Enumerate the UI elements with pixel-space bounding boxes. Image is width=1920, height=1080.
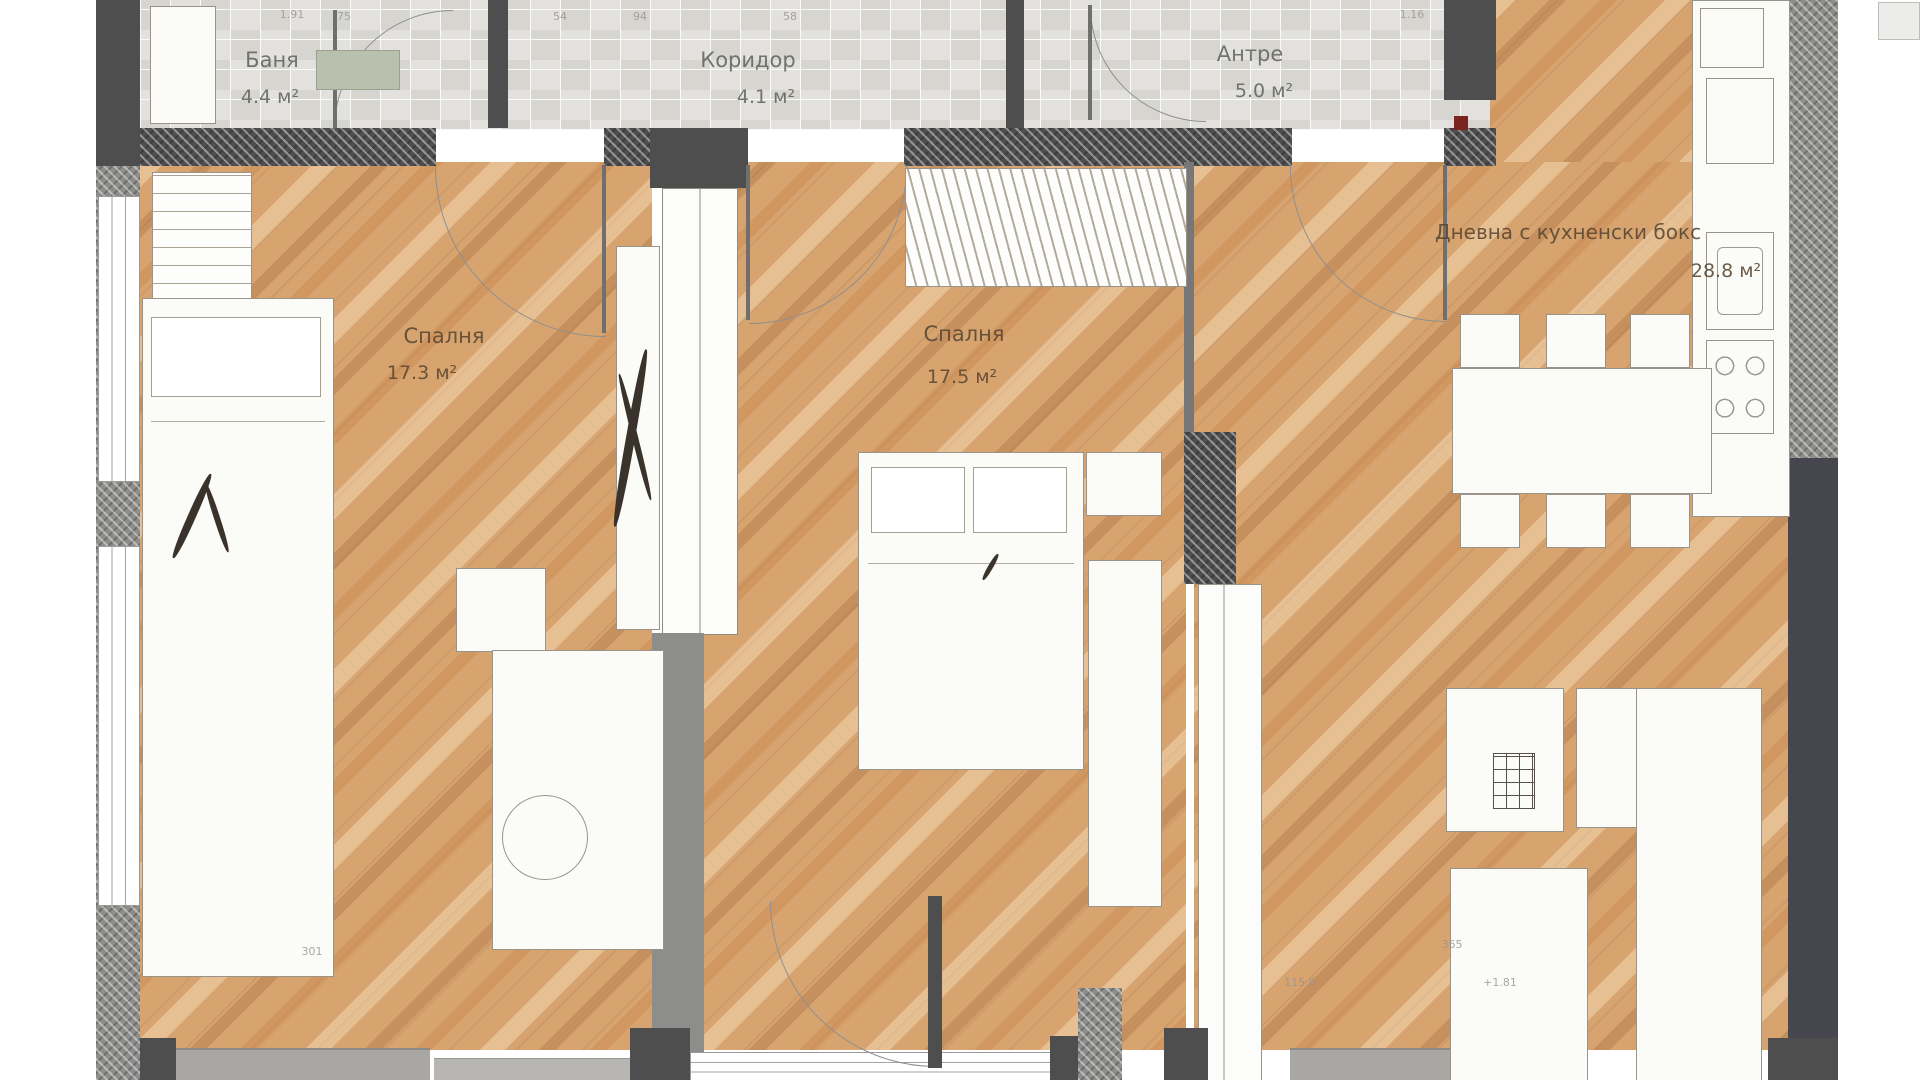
washing-machine [150,6,216,124]
bottom-block-2 [1050,1036,1078,1080]
bottom-right-corner [1768,1038,1838,1080]
entry-label: Антре [1217,44,1284,65]
dim-1: 75 [337,10,351,23]
entry-partition-wall [1006,0,1024,128]
bathroom-partition-wall [488,0,508,128]
dining-table [1452,368,1712,494]
dim-8: +1.81 [1483,976,1517,989]
tv-set [1493,753,1535,809]
bathroom-area: 4.4 м² [241,88,299,107]
bedroom1-door-leaf [602,165,606,333]
dining-chair-6 [1630,494,1690,548]
dim-5: 1.16 [1400,8,1425,21]
entry-area: 5.0 м² [1235,82,1293,101]
kitchen-appliance-2 [1706,78,1774,164]
side-table [1450,868,1588,1080]
bedroom1-nightstand [456,568,546,652]
bedroom2-nightstand [1086,452,1162,516]
dim-3: 94 [633,10,647,23]
entry-wall-stub [1444,0,1496,100]
right-outer-wall-top [1788,0,1838,458]
dining-chair-4 [1460,494,1520,548]
corridor-label: Коридор [700,50,795,71]
dim-7: 365 [1442,938,1463,951]
bedroom2-bottom-door-leaf [928,896,942,1068]
right-outer-wall-bottom [1788,458,1838,1080]
bedroom1-window-sill-1 [176,1048,430,1080]
corridor-wall-seg4 [1444,128,1496,166]
dim-2: 54 [553,10,567,23]
bedroom1-bed [142,298,334,977]
corridor-wall-seg3 [904,128,1292,166]
sofa-vertical [1636,688,1762,1080]
dim-6: 301 [302,945,323,958]
bedroom1-label: Спалня [403,326,484,347]
bedroom1-area: 17.3 м² [387,364,457,383]
bedroom2-living-wall-block [1184,432,1236,584]
bedroom2-door-leaf [746,165,750,320]
living-label: Дневна с кухненски бокс [1435,222,1701,242]
corridor-area: 4.1 м² [737,88,795,107]
bedroom2-blanket-line [868,563,1074,564]
bathroom-label: Баня [245,50,299,71]
bedroom2-bed [858,452,1084,770]
bathroom-counter [316,50,400,90]
bedroom2-label: Спалня [923,324,1004,345]
bedroom1-window-sill-2 [434,1058,632,1080]
column-marker-red [1454,116,1468,130]
kitchen-appliance-1 [1700,8,1764,68]
tv-cabinet [1446,688,1564,832]
corridor-wall-seg1 [140,128,436,166]
bedroom2-area: 17.5 м² [927,368,997,387]
dim-0: 1.91 [280,8,305,21]
bedrooms-wall-top [650,128,748,188]
bedroom1-desk [492,650,664,950]
dining-chair-5 [1546,494,1606,548]
bedroom2-window [690,1052,1052,1080]
bottom-block-3 [1164,1028,1208,1080]
bedroom1-blanket-line [151,421,326,422]
dim-9: 115.0 [1284,976,1316,989]
living-tall-panel [1198,584,1262,1080]
bottom-mid-block [630,1028,690,1080]
floor-plan: Баня 4.4 м² Коридор 4.1 м² Антре 5.0 м² … [0,0,1920,1080]
bedroom1-pillow [151,317,321,397]
corner-mark [1878,2,1920,40]
pocket-door-panel [662,188,738,635]
dim-4: 58 [783,10,797,23]
entry-door-leaf [1088,5,1092,120]
left-window-1 [98,196,140,482]
kitchen-nook-floor [1490,0,1692,162]
bedroom2-dresser [1088,560,1162,907]
left-window-2 [98,546,140,906]
bedroom1-chair [502,795,588,880]
bedroom2-pillow-2 [973,467,1067,533]
bedroom2-pillow-1 [871,467,965,533]
living-area: 28.8 м² [1691,262,1761,281]
bedroom2-wardrobe [905,168,1187,287]
dining-chair-2 [1546,314,1606,368]
living-window-sill [1290,1048,1466,1080]
bottom-pier [1078,988,1122,1080]
bottom-left-corner [140,1038,176,1080]
dining-chair-3 [1630,314,1690,368]
dining-chair-1 [1460,314,1520,368]
kitchen-hob [1706,340,1774,434]
bedroom1-closet [152,172,252,302]
